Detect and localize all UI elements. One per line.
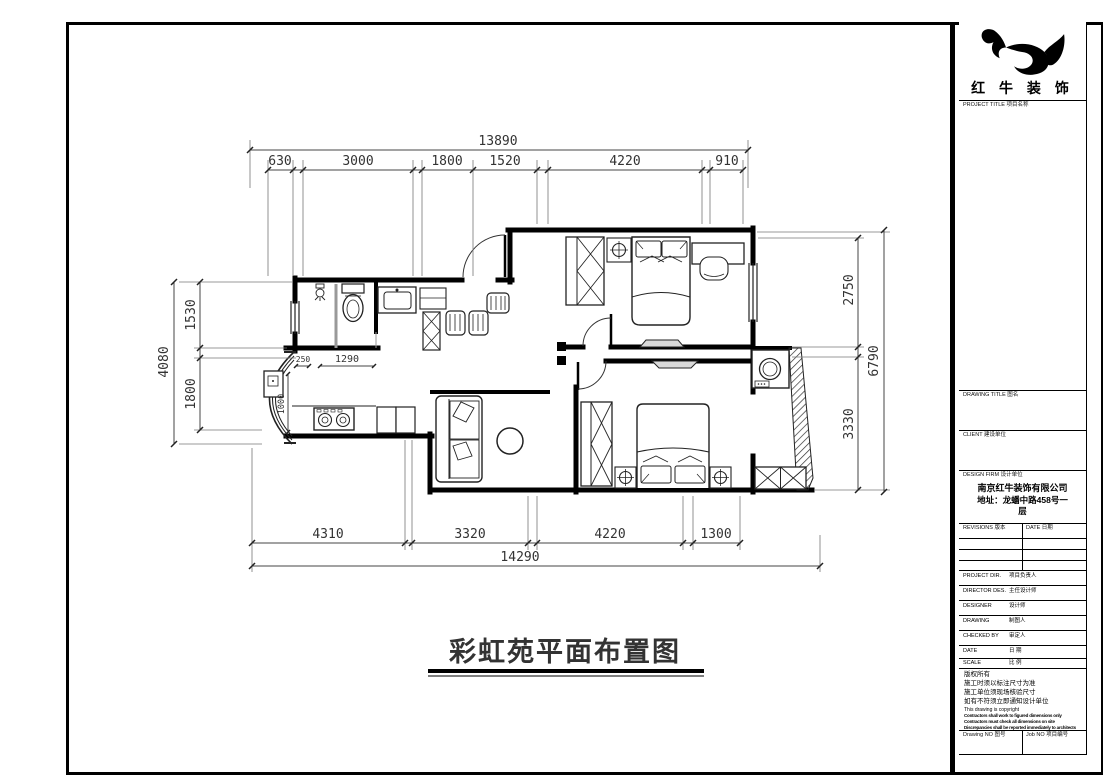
sofa [436, 396, 482, 482]
divider [959, 430, 1086, 431]
revisions-date-header: DATE 日期 [1026, 526, 1053, 532]
note-cn-1: 版权所有 [964, 672, 990, 679]
checked-by-row: CHECKED BY 审定人 [963, 634, 1026, 640]
dim-right-1: 3330 [842, 408, 857, 439]
divider [959, 560, 1086, 561]
row-cn: 项目负责人 [1009, 574, 1037, 580]
dim-top-2: 1800 [431, 154, 462, 169]
divider [959, 645, 1086, 646]
row-cn: 审定人 [1009, 634, 1026, 640]
note-cn-3: 施工单位须现场核验尺寸 [964, 690, 1036, 697]
divider [959, 538, 1086, 539]
design-firm-label: DESIGN FIRM 设计单位 [963, 473, 1023, 479]
note-cn-2: 施工时须以标注尺寸为准 [964, 681, 1036, 688]
dining-chair [487, 293, 509, 313]
revisions-header: REVISIONS 版本 [963, 526, 1005, 532]
dim-top-4: 4220 [609, 154, 640, 169]
plan-title: 彩虹苑平面布置图 [449, 637, 681, 668]
tv-console [652, 361, 698, 368]
row-en: CHECKED BY [963, 634, 1009, 640]
divider [959, 754, 1086, 755]
divider [959, 390, 1086, 391]
wall-cap [557, 356, 566, 365]
divider [959, 470, 1086, 471]
dim-inner-250: 250 [296, 355, 311, 364]
project-dir-row: PROJECT DIR. 项目负责人 [963, 574, 1037, 580]
row-en: PROJECT DIR. [963, 574, 1009, 580]
toilet-icon [342, 284, 364, 322]
exterior-walls [286, 228, 812, 492]
job-no-label: Job NO 项目编号 [1026, 733, 1068, 739]
coffee-table [497, 428, 523, 454]
double-bed [632, 237, 690, 325]
scale-row: SCALE 比 例 [963, 661, 1022, 667]
dim-bottom-1: 3320 [454, 527, 485, 542]
company-name: 红 牛 装 饰 [959, 78, 1086, 98]
title-block: 红 牛 装 饰 PROJECT TITLE 项目名称 DRAWING TITLE… [959, 22, 1087, 755]
nightstand-lamp-icon [615, 467, 636, 488]
design-firm-name: 南京红牛装饰有限公司 [959, 481, 1086, 494]
bedroom1-door [583, 314, 611, 346]
divider [959, 615, 1086, 616]
dim-right-0: 2750 [842, 274, 857, 305]
kitchen-sliding-door [377, 407, 415, 433]
nightstand-lamp-icon [607, 238, 631, 262]
project-title-label: PROJECT TITLE 项目名称 [963, 103, 1029, 109]
sink-vanity-icon [378, 287, 416, 313]
balcony-cabinet-x [755, 467, 806, 489]
bedroom2-door [578, 361, 606, 390]
dim-top-5: 910 [715, 154, 738, 169]
fridge-icon [264, 371, 283, 397]
shower-icon [315, 284, 325, 301]
row-en: SCALE [963, 661, 1009, 667]
dim-inner-1000: 1000 [277, 394, 287, 414]
note-bold-1: Contractors shall work to figured dimens… [964, 714, 1062, 719]
row-en: DESIGNER [963, 604, 1009, 610]
dim-bottom-0: 4310 [312, 527, 343, 542]
wardrobe-icon [581, 402, 612, 486]
drawing-no-label: Drawing NO 图号 [963, 733, 1005, 739]
floor-plan: 13890 630 3000 1800 1520 4220 910 4310 3… [0, 0, 1108, 780]
design-firm-address-2: 层 [959, 505, 1086, 517]
dim-inner-1290: 1290 [335, 354, 359, 365]
dim-left-1: 1800 [184, 378, 199, 409]
note-cn-4: 如有不符须立即通知设计单位 [964, 699, 1049, 706]
row-cn: 日 期 [1009, 649, 1022, 655]
row-en: DIRECTOR DES. [963, 589, 1009, 595]
divider [959, 100, 1086, 101]
dining-chair [469, 311, 488, 335]
director-des-row: DIRECTOR DES. 主任设计师 [963, 589, 1037, 595]
dim-bottom-3: 1300 [700, 527, 731, 542]
divider [959, 549, 1086, 550]
entry-door [463, 235, 505, 277]
stove-icon [314, 408, 354, 430]
divider [959, 570, 1086, 571]
nightstand-lamp-icon [710, 467, 731, 488]
client-label: CLIENT 建设单位 [963, 433, 1006, 439]
designer-row: DESIGNER 设计师 [963, 604, 1026, 610]
wardrobe-icon [566, 237, 604, 305]
drawing-row: DRAWING 制图人 [963, 619, 1026, 625]
dim-top-overall: 13890 [478, 134, 517, 149]
window-left [291, 301, 299, 334]
row-cn: 制图人 [1009, 619, 1026, 625]
window-right [749, 263, 757, 322]
row-en: DATE [963, 649, 1009, 655]
divider [959, 630, 1086, 631]
row-en: DRAWING [963, 619, 1009, 625]
dim-left-0: 1530 [184, 299, 199, 330]
note-bold-2: Contractors must check all dimensions on… [964, 720, 1055, 725]
dining-chair [446, 311, 465, 335]
wall-cap [557, 342, 566, 351]
desk-chair [700, 257, 728, 280]
divider [959, 668, 1086, 669]
dim-bottom-2: 4220 [594, 527, 625, 542]
washing-machine-icon [752, 350, 789, 388]
tv-console [640, 340, 684, 347]
dim-left-overall: 4080 [157, 346, 172, 377]
divider [959, 585, 1086, 586]
dim-top-3: 1520 [489, 154, 520, 169]
dim-top-0: 630 [268, 154, 291, 169]
double-bed [637, 404, 709, 488]
revisions-divider [1022, 523, 1023, 570]
row-cn: 比 例 [1009, 661, 1022, 667]
row-cn: 主任设计师 [1009, 589, 1037, 595]
dim-top-1: 3000 [342, 154, 373, 169]
row-cn: 设计师 [1009, 604, 1026, 610]
footer-divider [1022, 730, 1023, 755]
storage-cabinet-x [423, 312, 440, 350]
divider [959, 600, 1086, 601]
drawing-sheet: 13890 630 3000 1800 1520 4220 910 4310 3… [0, 0, 1108, 780]
dining-cabinet [420, 288, 446, 309]
dim-bottom-overall: 14290 [500, 550, 539, 565]
bull-logo-icon [959, 27, 1086, 82]
drawing-title-label: DRAWING TITLE 图名 [963, 393, 1018, 399]
date-row: DATE 日 期 [963, 649, 1022, 655]
title-underline-thick [428, 669, 704, 673]
dim-right-overall: 6790 [867, 345, 882, 376]
divider [959, 658, 1086, 659]
